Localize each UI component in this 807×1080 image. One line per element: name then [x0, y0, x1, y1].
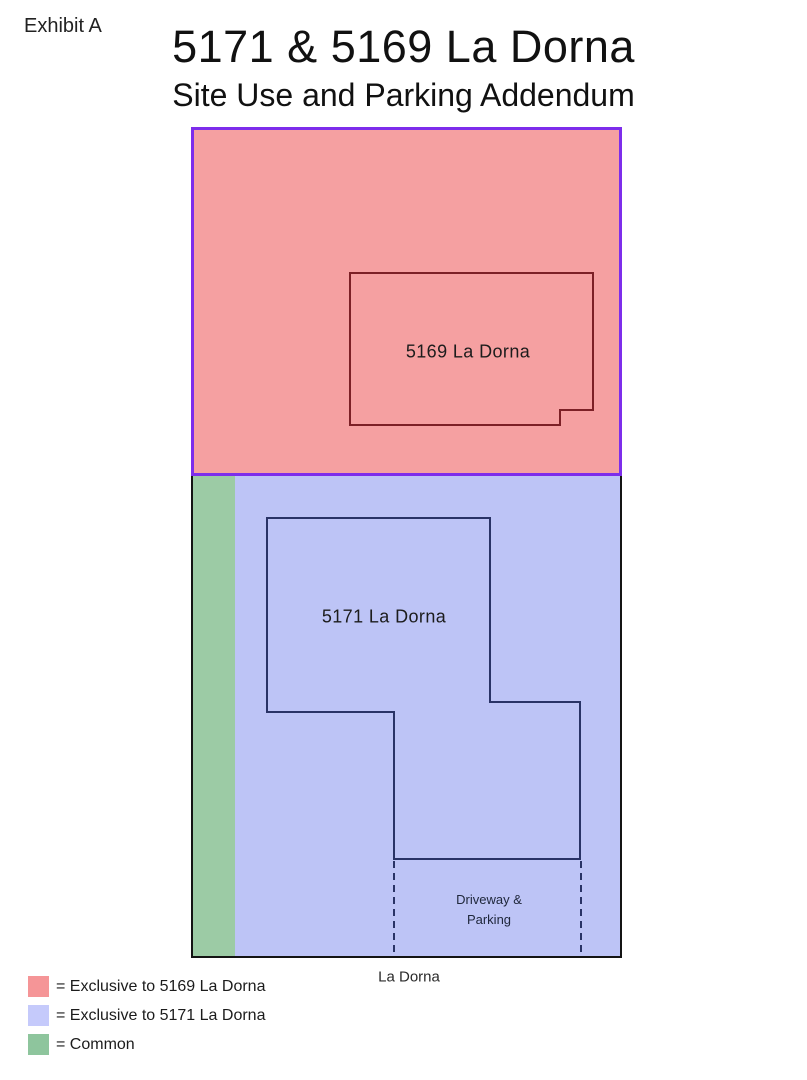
legend-swatch-exclusive-5169: [28, 976, 49, 997]
street-name-label: La Dorna: [378, 969, 440, 986]
parcel-5171-area: [191, 476, 622, 958]
page-subtitle: Site Use and Parking Addendum: [0, 76, 807, 114]
legend-label: = Exclusive to 5171 La Dorna: [56, 1007, 265, 1025]
legend-swatch-exclusive-5171: [28, 1005, 49, 1026]
page-title: 5171 & 5169 La Dorna: [0, 20, 807, 74]
legend-label: = Exclusive to 5169 La Dorna: [56, 978, 265, 996]
legend-row-exclusive-5169: = Exclusive to 5169 La Dorna: [28, 976, 265, 997]
legend: = Exclusive to 5169 La Dorna = Exclusive…: [28, 976, 265, 1063]
legend-swatch-common: [28, 1034, 49, 1055]
legend-label: = Common: [56, 1036, 135, 1054]
parcel-5169-area: [191, 127, 622, 476]
driveway-parking-label: Driveway & Parking: [456, 890, 522, 930]
building-5169-label: 5169 La Dorna: [406, 342, 530, 363]
common-area-strip: [193, 476, 235, 956]
building-5171-label: 5171 La Dorna: [322, 607, 446, 628]
legend-row-common: = Common: [28, 1034, 265, 1055]
legend-row-exclusive-5171: = Exclusive to 5171 La Dorna: [28, 1005, 265, 1026]
